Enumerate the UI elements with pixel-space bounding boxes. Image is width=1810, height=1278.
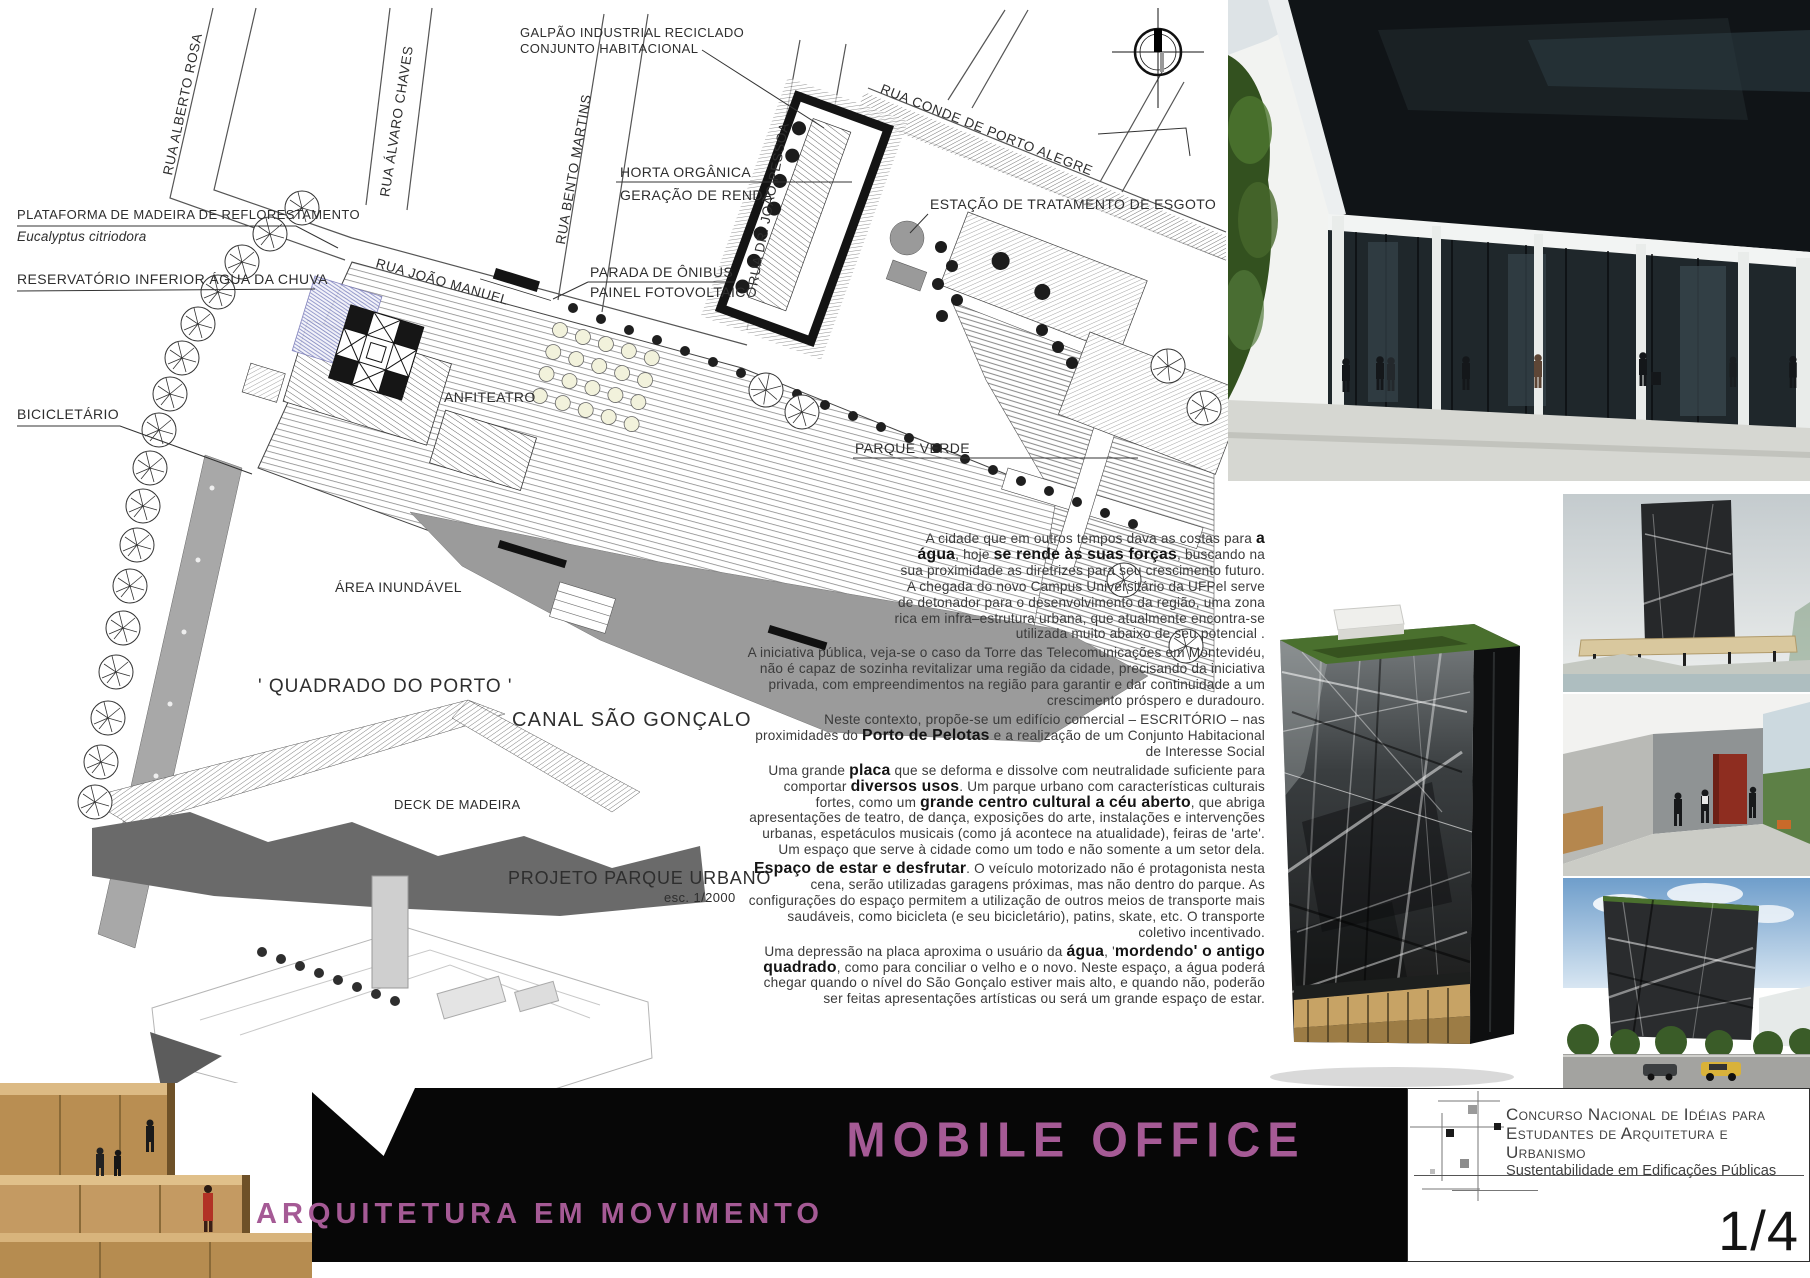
- paragraph: Espaço de estar e desfrutar. O veículo m…: [744, 861, 1265, 941]
- competition-line-1: Concurso Nacional de Idéias para: [1506, 1105, 1806, 1124]
- render-tower-model: [1242, 572, 1534, 1092]
- photo-wood-blocks: [0, 1083, 312, 1278]
- competition-text: Concurso Nacional de Idéias para Estudan…: [1506, 1105, 1806, 1181]
- render-thumb-tower-platform: [1563, 494, 1810, 692]
- label-estacao: ESTAÇÃO DE TRATAMENTO DE ESGOTO: [930, 196, 1216, 212]
- label-quadrado-porto: ' QUADRADO DO PORTO ': [258, 676, 513, 697]
- competition-line-3: Sustentabilidade em Edificações Públicas: [1506, 1162, 1806, 1181]
- label-area-inundavel: ÁREA INUNDÁVEL: [335, 579, 462, 595]
- label-parada: PARADA DE ÔNIBUS: [590, 264, 733, 280]
- label-deck: DECK DE MADEIRA: [394, 797, 521, 812]
- label-bicicletario: BICICLETÁRIO: [17, 406, 119, 422]
- presentation-board: PLATAFORMA DE MADEIRA DE REFLORESTAMENTO…: [0, 0, 1810, 1278]
- label-canal: CANAL SÃO GONÇALO: [512, 707, 752, 731]
- label-projeto-parque: PROJETO PARQUE URBANO: [508, 868, 771, 888]
- label-plataforma: PLATAFORMA DE MADEIRA DE REFLORESTAMENTO: [17, 207, 360, 222]
- page-number: 1/4: [1718, 1203, 1799, 1259]
- board-title: MOBILE OFFICE: [740, 1111, 1412, 1168]
- label-escala: esc. 1/2000: [664, 890, 736, 905]
- competition-line-2: Estudantes de Arquitetura e Urbanismo: [1506, 1124, 1806, 1162]
- label-reservatorio: RESERVATÓRIO INFERIOR ÁGUA DA CHUVA: [17, 271, 328, 287]
- paragraph: Uma grande placa que se deforma e dissol…: [744, 763, 1265, 858]
- paragraph: A iniciativa pública, veja-se o caso da …: [744, 645, 1265, 709]
- street-bento-martins: RUA BENTO MARTINS: [553, 93, 594, 246]
- project-description: A cidade que em outros tempos dava as co…: [744, 531, 1265, 1010]
- render-thumb-tower-street: [1563, 878, 1810, 1091]
- label-painel: PAINEL FOTOVOLTAICO: [590, 284, 757, 300]
- label-geracao: GERAÇÃO DE RENDA: [620, 187, 773, 203]
- label-horta: HORTA ORGÂNICA: [620, 164, 751, 180]
- label-anfiteatro: ANFITEATRO: [444, 389, 536, 405]
- render-building-entrance: [1228, 0, 1810, 481]
- horta-organica-shape: [701, 77, 908, 359]
- paragraph: Uma depressão na placa aproxima o usuári…: [744, 944, 1265, 1008]
- paragraph: Neste contexto, propõe-se um edifício co…: [744, 712, 1265, 760]
- competition-logo-icon: [1408, 1089, 1508, 1209]
- render-thumb-interior: [1563, 694, 1810, 876]
- board-subtitle: ARQUITETURA EM MOVIMENTO: [256, 1198, 824, 1231]
- label-galpao: GALPÃO INDUSTRIAL RECICLADO: [520, 25, 744, 40]
- panel-divider: [1414, 1175, 1804, 1176]
- label-conjunto: CONJUNTO HABITACIONAL: [520, 41, 698, 56]
- panel-divider-small: [1452, 1190, 1538, 1191]
- label-parque-verde: PARQUE VERDE: [855, 440, 970, 456]
- north-arrow-icon: [1112, 8, 1204, 108]
- competition-panel: Concurso Nacional de Idéias para Estudan…: [1407, 1088, 1810, 1262]
- label-eucalyptus: Eucalyptus citriodora: [17, 229, 147, 244]
- street-alberto-rosa: RUA ALBERTO ROSA: [160, 32, 205, 177]
- paragraph: A cidade que em outros tempos dava as co…: [894, 531, 1265, 642]
